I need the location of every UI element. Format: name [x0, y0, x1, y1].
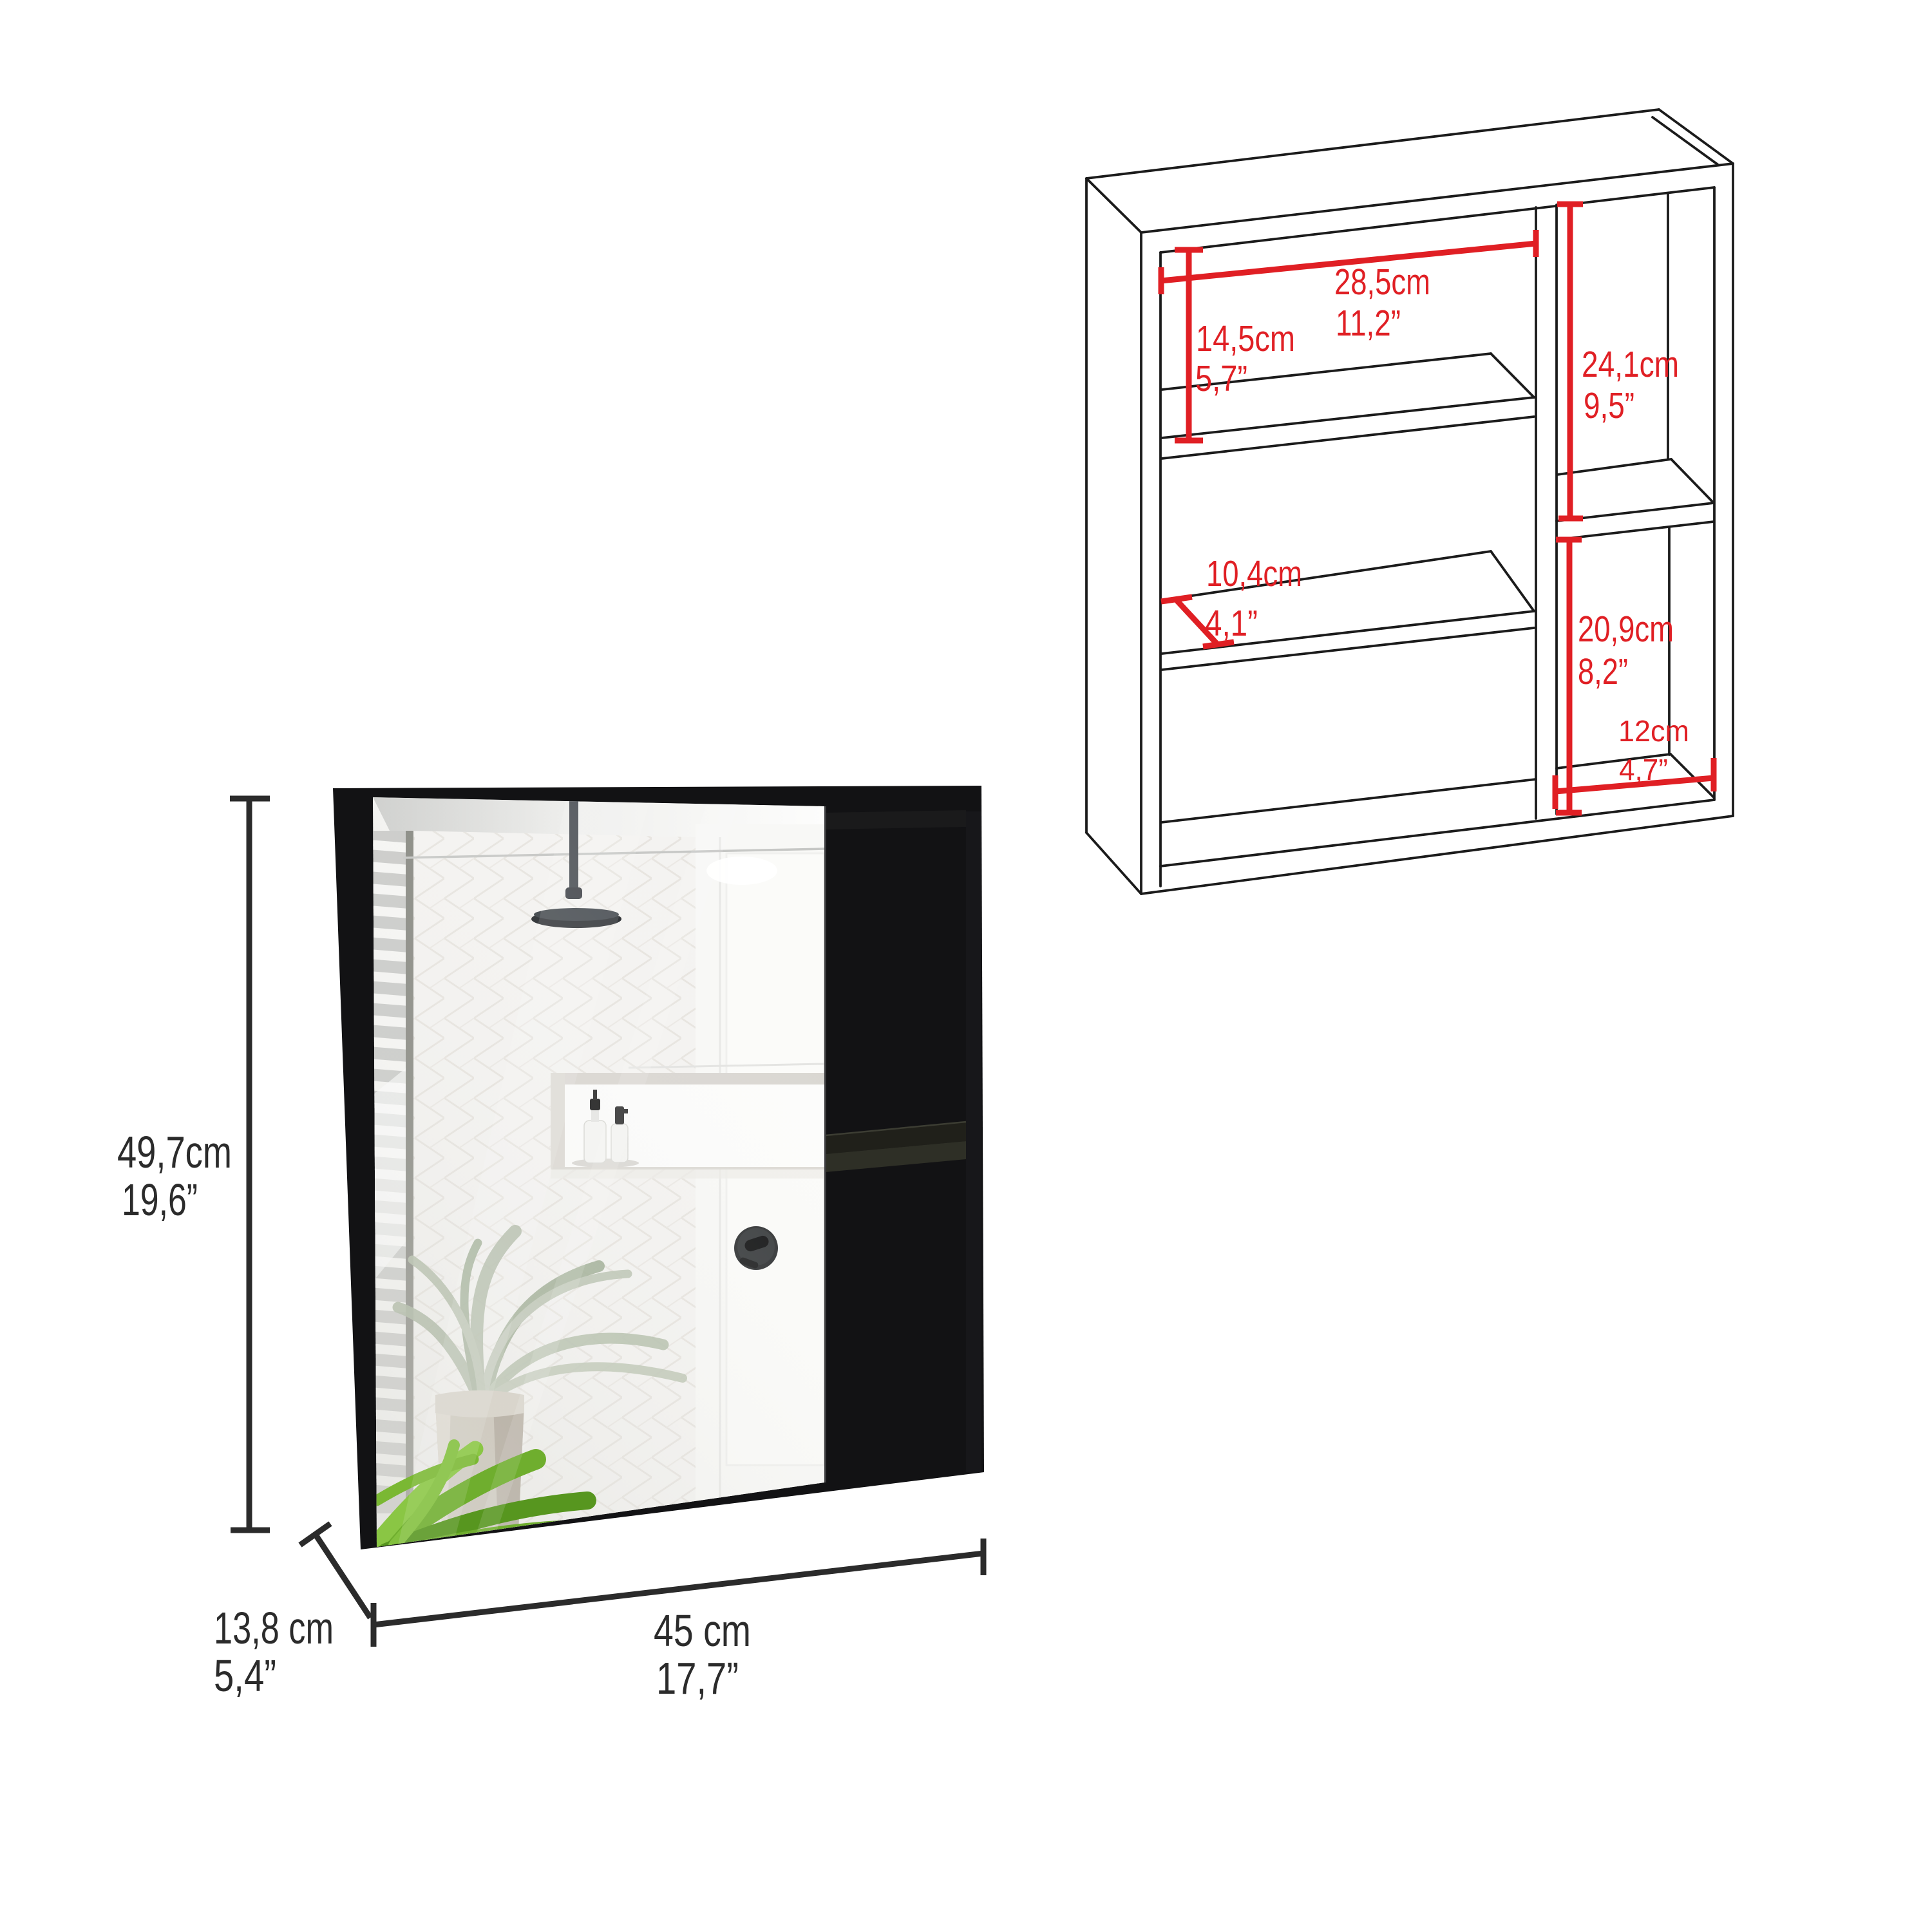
svg-text:45 cm: 45 cm [654, 1605, 751, 1656]
svg-text:24,1cm: 24,1cm [1582, 344, 1679, 385]
svg-text:28,5cm: 28,5cm [1334, 261, 1430, 303]
svg-text:4,1”: 4,1” [1205, 603, 1258, 644]
svg-text:49,7cm: 49,7cm [117, 1127, 232, 1177]
svg-text:5,4”: 5,4” [214, 1651, 276, 1701]
svg-text:14,5cm: 14,5cm [1196, 318, 1295, 359]
svg-text:5,7”: 5,7” [1195, 358, 1247, 399]
svg-text:13,8 cm: 13,8 cm [214, 1603, 334, 1653]
svg-text:19,6”: 19,6” [122, 1175, 198, 1225]
svg-text:8,2”: 8,2” [1578, 651, 1628, 692]
svg-text:17,7”: 17,7” [656, 1653, 739, 1703]
svg-text:10,4cm: 10,4cm [1206, 553, 1302, 594]
svg-text:9,5”: 9,5” [1584, 385, 1634, 426]
svg-text:11,2”: 11,2” [1336, 303, 1401, 344]
svg-text:12cm: 12cm [1618, 714, 1689, 748]
svg-text:4,7”: 4,7” [1619, 753, 1668, 786]
svg-text:20,9cm: 20,9cm [1578, 609, 1674, 650]
